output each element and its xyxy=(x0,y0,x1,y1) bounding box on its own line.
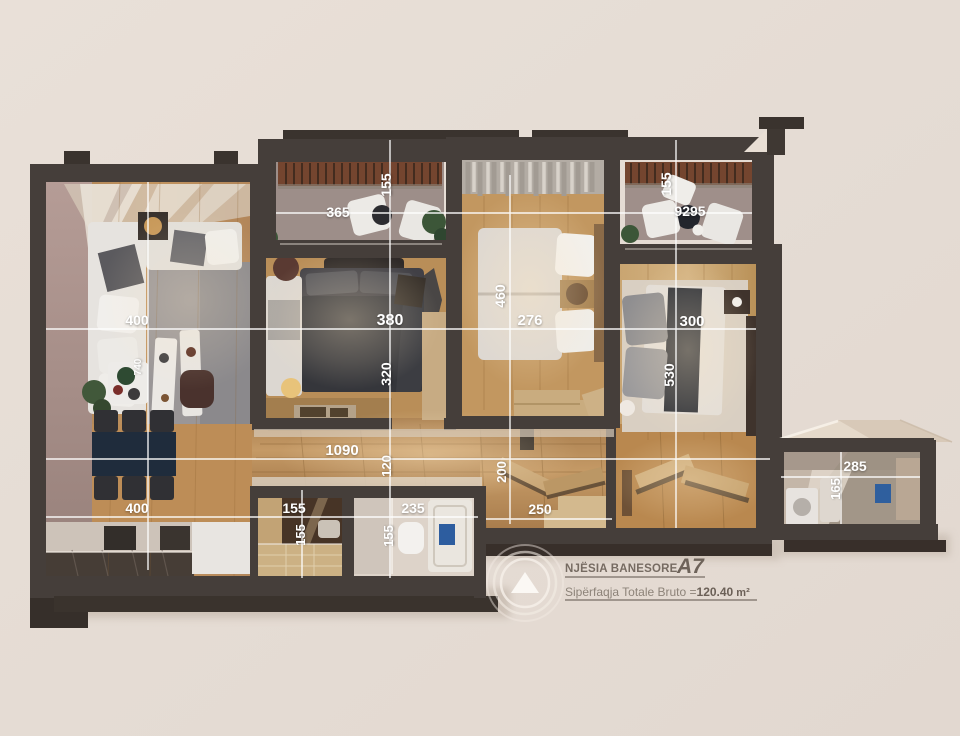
svg-text:A7: A7 xyxy=(676,555,705,578)
svg-text:320: 320 xyxy=(378,362,394,386)
svg-text:740: 740 xyxy=(133,358,144,375)
svg-text:155: 155 xyxy=(658,172,674,196)
svg-text:365: 365 xyxy=(326,204,350,220)
svg-text:400: 400 xyxy=(125,500,149,516)
svg-text:155: 155 xyxy=(381,525,396,547)
svg-text:235: 235 xyxy=(401,500,425,516)
svg-text:155: 155 xyxy=(293,524,308,546)
svg-text:9295: 9295 xyxy=(674,203,705,219)
svg-text:380: 380 xyxy=(377,312,404,329)
svg-text:Sipërfaqja Totale Bruto =120.4: Sipërfaqja Totale Bruto =120.40 m² xyxy=(565,585,750,599)
svg-text:300: 300 xyxy=(679,313,704,330)
svg-text:1090: 1090 xyxy=(325,442,358,459)
svg-text:250: 250 xyxy=(528,501,552,517)
svg-text:NJËSIA BANESORE: NJËSIA BANESORE xyxy=(565,562,678,575)
svg-text:155: 155 xyxy=(378,173,394,197)
svg-text:530: 530 xyxy=(661,363,677,387)
svg-text:276: 276 xyxy=(517,312,542,329)
svg-text:155: 155 xyxy=(282,500,306,516)
svg-text:120: 120 xyxy=(379,455,394,477)
svg-text:285: 285 xyxy=(843,458,867,474)
svg-text:200: 200 xyxy=(494,461,509,483)
svg-text:400: 400 xyxy=(125,312,149,328)
svg-text:165: 165 xyxy=(828,478,843,500)
svg-text:460: 460 xyxy=(492,284,508,308)
